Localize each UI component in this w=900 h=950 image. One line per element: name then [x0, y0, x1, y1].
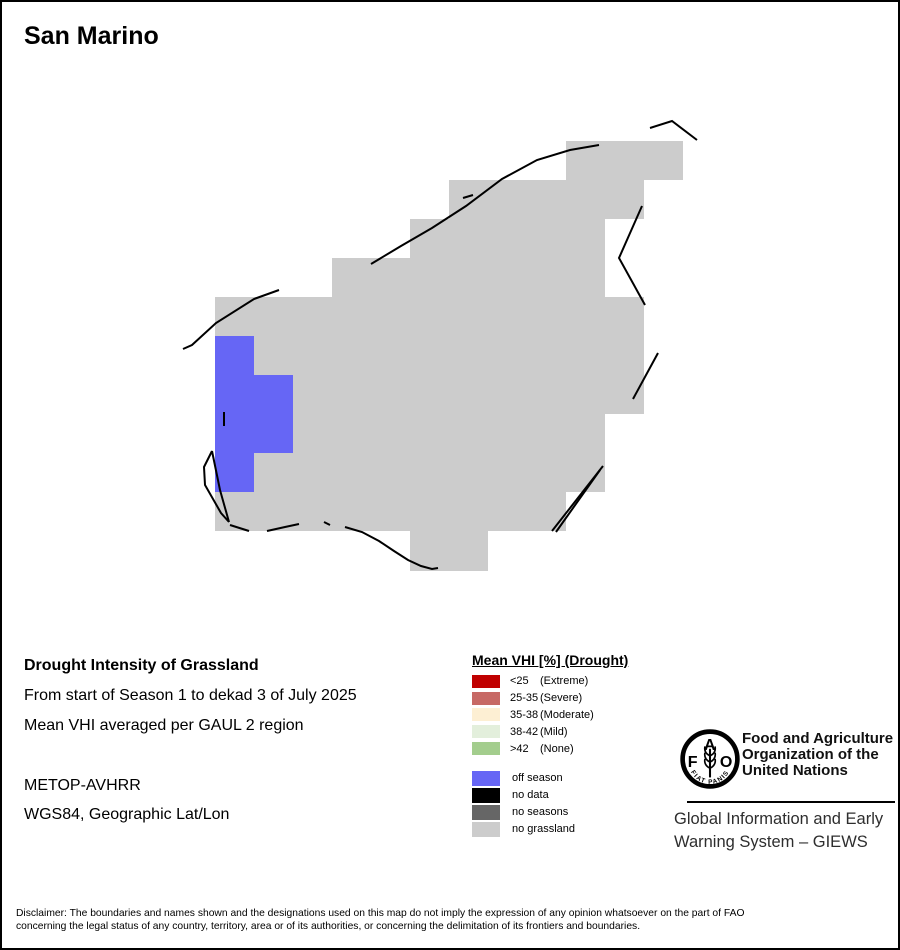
period-line: From start of Season 1 to dekad 3 of Jul…	[24, 687, 357, 705]
admin-boundary-line	[324, 522, 330, 525]
page-title: San Marino	[24, 22, 159, 51]
map-region-no-grassland	[215, 297, 644, 336]
legend-row: 25-35(Severe)	[472, 690, 692, 707]
map-region-no-grassland	[566, 141, 683, 180]
legend-class-label: (None)	[540, 743, 574, 755]
legend-range: 25-35	[510, 692, 540, 704]
legend-range: <25	[510, 675, 540, 687]
legend-class-label: no grassland	[512, 823, 575, 835]
map-region-no-grassland	[254, 336, 644, 375]
fao-divider	[687, 801, 895, 803]
legend-row: off season	[472, 770, 692, 787]
disclaimer-line: Disclaimer: The boundaries and names sho…	[16, 908, 744, 921]
map-region-no-grassland	[449, 180, 644, 219]
fao-org-name: Food and Agriculture Organization of the…	[742, 731, 893, 779]
map-region-off-season	[254, 375, 293, 453]
disclaimer: Disclaimer: The boundaries and names sho…	[16, 908, 744, 934]
season-legend: off seasonno datano seasonsno grassland	[472, 770, 692, 838]
fao-org-line: Organization of the	[742, 747, 893, 763]
aggregation-line: Mean VHI averaged per GAUL 2 region	[24, 717, 304, 735]
map-region-no-grassland	[410, 219, 605, 258]
admin-boundary-line	[463, 195, 473, 198]
map-region-no-grassland	[332, 258, 605, 297]
legend-swatch	[472, 675, 500, 688]
map-sheet: San Marino Drought Intensity of Grasslan…	[0, 0, 900, 950]
map-region-no-grassland	[254, 453, 605, 492]
legend-row: 38-42(Mild)	[472, 723, 692, 740]
legend-swatch	[472, 692, 500, 705]
admin-boundary-line	[619, 206, 645, 305]
map-region-no-grassland	[293, 414, 605, 453]
map-region-no-grassland	[215, 492, 566, 531]
admin-boundary-line	[212, 451, 229, 522]
legend-class-label: (Extreme)	[540, 675, 588, 687]
disclaimer-line: concerning the legal status of any count…	[16, 921, 744, 934]
admin-boundary-line	[345, 527, 438, 569]
legend: Mean VHI [%] (Drought) <25(Extreme)25-35…	[472, 652, 692, 838]
admin-boundary-line	[650, 121, 697, 140]
fao-letter-f: F	[688, 754, 698, 771]
legend-range: >42	[510, 743, 540, 755]
sensor-line: METOP-AVHRR	[24, 777, 141, 795]
giews-label: Global Information and Early Warning Sys…	[674, 808, 883, 853]
admin-boundary-line	[183, 290, 279, 349]
fao-letter-o: O	[720, 754, 732, 771]
legend-row: no data	[472, 787, 692, 804]
map-region-off-season	[215, 336, 254, 492]
legend-class-label: no data	[512, 789, 549, 801]
legend-swatch	[472, 708, 500, 721]
legend-class-label: off season	[512, 772, 563, 784]
map-region-no-grassland	[410, 531, 488, 571]
giews-line: Warning System – GIEWS	[674, 831, 883, 854]
admin-boundary-line	[230, 525, 249, 531]
legend-class-label: no seasons	[512, 806, 568, 818]
fao-org-line: Food and Agriculture	[742, 731, 893, 747]
admin-boundary-line	[204, 451, 229, 522]
admin-boundary-line	[556, 470, 600, 532]
legend-class-label: (Mild)	[540, 726, 568, 738]
legend-swatch	[472, 788, 500, 803]
legend-swatch	[472, 771, 500, 786]
admin-boundary-line	[267, 524, 299, 531]
admin-boundary-line	[552, 466, 603, 531]
legend-row: 35-38(Moderate)	[472, 707, 692, 724]
legend-class-label: (Severe)	[540, 692, 582, 704]
fao-logo-icon: F A O FIAT PANIS	[679, 728, 741, 790]
legend-range: 35-38	[510, 709, 540, 721]
legend-row: no seasons	[472, 804, 692, 821]
legend-swatch	[472, 742, 500, 755]
drought-legend: <25(Extreme)25-35(Severe)35-38(Moderate)…	[472, 673, 692, 757]
legend-range: 38-42	[510, 726, 540, 738]
projection-line: WGS84, Geographic Lat/Lon	[24, 806, 229, 824]
giews-line: Global Information and Early	[674, 808, 883, 831]
legend-class-label: (Moderate)	[540, 709, 594, 721]
fao-org-line: United Nations	[742, 763, 893, 779]
legend-title: Mean VHI [%] (Drought)	[472, 652, 692, 668]
admin-boundary-line	[633, 353, 658, 399]
product-title: Drought Intensity of Grassland	[24, 657, 259, 675]
legend-swatch	[472, 725, 500, 738]
legend-swatch	[472, 805, 500, 820]
legend-row: <25(Extreme)	[472, 673, 692, 690]
legend-row: no grassland	[472, 821, 692, 838]
legend-swatch	[472, 822, 500, 837]
admin-boundary-line	[371, 145, 599, 264]
legend-row: >42(None)	[472, 740, 692, 757]
map-region-no-grassland	[293, 375, 644, 414]
